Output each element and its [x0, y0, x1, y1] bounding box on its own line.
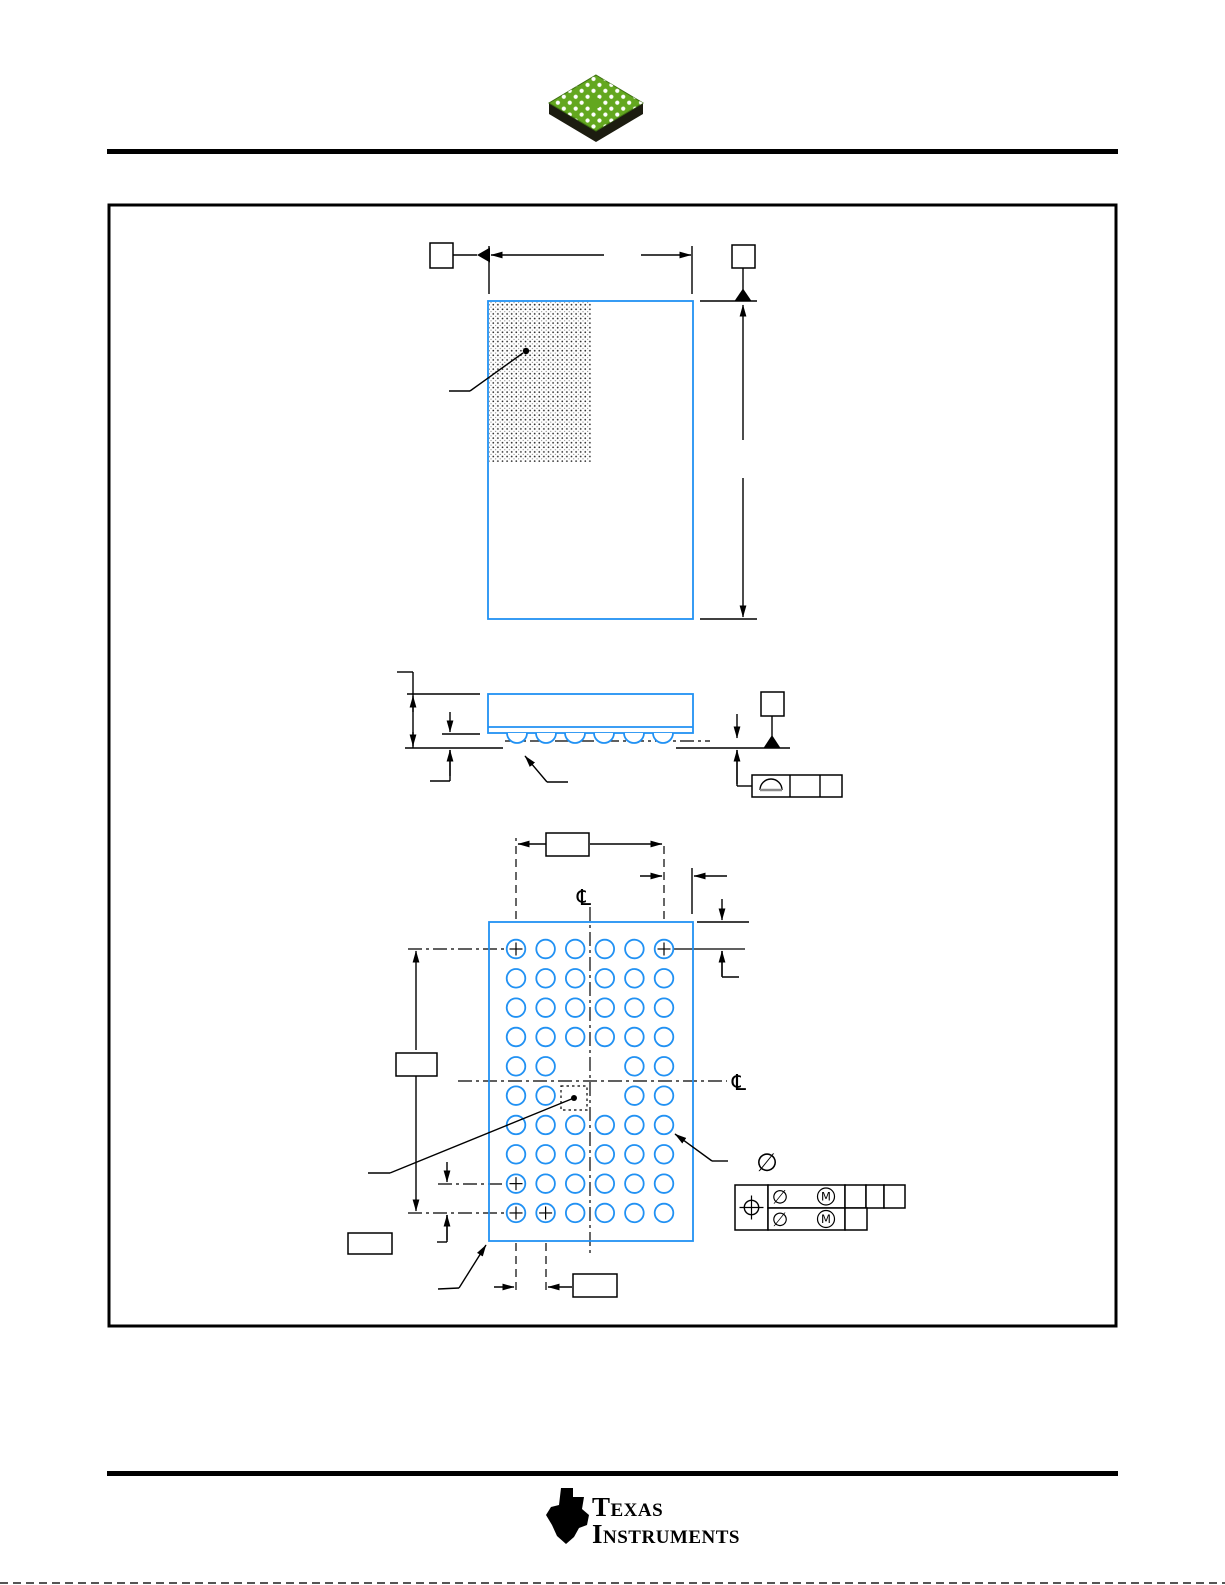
- row-pitch-dimension: [437, 1162, 447, 1242]
- top-view: [430, 243, 757, 619]
- solder-ball: [536, 1174, 555, 1193]
- solder-ball: [596, 1116, 615, 1135]
- dimension-label-box-height: [732, 245, 755, 268]
- solder-ball: [596, 998, 615, 1017]
- centerline-symbol-top: ℄: [576, 886, 592, 911]
- diameter-symbol: ∅: [772, 1187, 789, 1209]
- solder-ball: [655, 1145, 674, 1164]
- solder-ball: [536, 1028, 555, 1047]
- datum-label-box-side: [761, 692, 784, 716]
- header: [107, 75, 1118, 154]
- solder-ball: [566, 1028, 585, 1047]
- bottom-view: ℄ ℄: [348, 833, 905, 1297]
- datum-ref-cell-3: [884, 1185, 905, 1208]
- solder-ball: [625, 998, 644, 1017]
- bga-chip-icon: [549, 75, 643, 142]
- ti-logo-icon: ti: [546, 1488, 589, 1544]
- solder-ball: [536, 969, 555, 988]
- solder-ball: [507, 998, 526, 1017]
- solder-ball: [625, 1116, 644, 1135]
- leader-dot: [523, 348, 529, 354]
- solder-ball: [566, 1145, 585, 1164]
- solder-ball: [655, 998, 674, 1017]
- header-rule: [107, 149, 1118, 154]
- solder-ball: [507, 1028, 526, 1047]
- side-ball-leader: [525, 756, 568, 782]
- solder-ball: [596, 1174, 615, 1193]
- solder-ball: [507, 1086, 526, 1105]
- seating-plane-control-frame: [752, 775, 842, 797]
- solder-ball: [655, 1057, 674, 1076]
- dimension-label-box-width: [430, 243, 453, 268]
- ti-bug-letters: ti: [556, 1511, 574, 1535]
- datum-ref-cell-1: [845, 1185, 866, 1208]
- footer: ti Texas Instruments: [107, 1471, 1118, 1549]
- dimension-label-box-corner: [348, 1233, 392, 1254]
- solder-ball: [566, 940, 585, 959]
- dimension-label-box-pitch: [573, 1274, 617, 1297]
- solder-ball: [625, 1028, 644, 1047]
- solder-ball: [536, 1086, 555, 1105]
- solder-ball: [625, 940, 644, 959]
- side-view: [397, 672, 842, 797]
- package-outline-drawing: ℄ ℄: [0, 0, 1225, 1585]
- solder-ball: [566, 1116, 585, 1135]
- solder-ball: [536, 940, 555, 959]
- solder-ball: [566, 969, 585, 988]
- datum-triangle-left: [477, 248, 490, 263]
- solder-ball: [566, 1174, 585, 1193]
- column-pitch-dimension: [494, 1274, 617, 1297]
- diameter-symbol: ∅: [756, 1148, 778, 1177]
- solder-ball: [625, 1204, 644, 1223]
- solder-ball: [536, 1116, 555, 1135]
- solder-ball: [536, 1057, 555, 1076]
- solder-ball: [507, 1145, 526, 1164]
- dimension-label-box-span: [546, 833, 589, 856]
- corner-leader: [438, 1245, 486, 1289]
- side-view-height-dimensions: [397, 672, 480, 781]
- diameter-symbol: ∅: [772, 1209, 789, 1231]
- brand-line-1: Texas: [592, 1492, 663, 1522]
- solder-ball: [625, 1145, 644, 1164]
- solder-ball: [655, 1174, 674, 1193]
- datasheet-page: ℄ ℄: [0, 0, 1225, 1585]
- edge-to-row-dimension: [697, 899, 749, 977]
- solder-ball: [507, 969, 526, 988]
- datum-triangle-side: [764, 735, 781, 748]
- mmc-symbol: M: [821, 1190, 831, 1204]
- chip-center-mark: [591, 98, 602, 109]
- dimension-label-box-rowspan: [396, 1053, 437, 1076]
- top-view-height-dimension: [700, 245, 757, 619]
- solder-ball: [596, 969, 615, 988]
- solder-ball: [596, 1028, 615, 1047]
- brand-line-2: Instruments: [592, 1519, 740, 1549]
- solder-ball: [625, 1057, 644, 1076]
- solder-ball: [596, 940, 615, 959]
- solder-ball: [625, 969, 644, 988]
- solder-ball: [625, 1086, 644, 1105]
- solder-ball: [655, 1086, 674, 1105]
- row-span-dimension: [396, 951, 437, 1211]
- ball-diameter-leader: ∅: [675, 1134, 778, 1177]
- edge-to-column-dimension: [640, 868, 727, 914]
- solder-ball: [655, 1116, 674, 1135]
- solder-ball: [596, 1145, 615, 1164]
- solder-ball: [566, 998, 585, 1017]
- a1-index-stipple-area: [489, 302, 591, 462]
- datum-ref-cell-2: [866, 1185, 884, 1208]
- solder-ball: [625, 1174, 644, 1193]
- solder-ball: [655, 1204, 674, 1223]
- side-view-standoff-dimension: [737, 692, 784, 786]
- top-view-width-dimension: [430, 243, 692, 294]
- solder-ball: [655, 969, 674, 988]
- solder-ball: [536, 998, 555, 1017]
- solder-ball: [655, 1028, 674, 1047]
- mmc-symbol: M: [821, 1212, 831, 1226]
- centerline-symbol-right: ℄: [731, 1071, 747, 1096]
- datum-ref-cell-4: [845, 1208, 867, 1230]
- solder-ball: [507, 1057, 526, 1076]
- datum-triangle-top-right: [735, 289, 752, 302]
- position-control-frame: ∅ M ∅ M: [735, 1185, 905, 1231]
- solder-ball: [596, 1204, 615, 1223]
- footer-rule: [107, 1471, 1118, 1476]
- solder-ball: [536, 1145, 555, 1164]
- ball-span-dimension: [518, 833, 662, 856]
- solder-ball: [566, 1204, 585, 1223]
